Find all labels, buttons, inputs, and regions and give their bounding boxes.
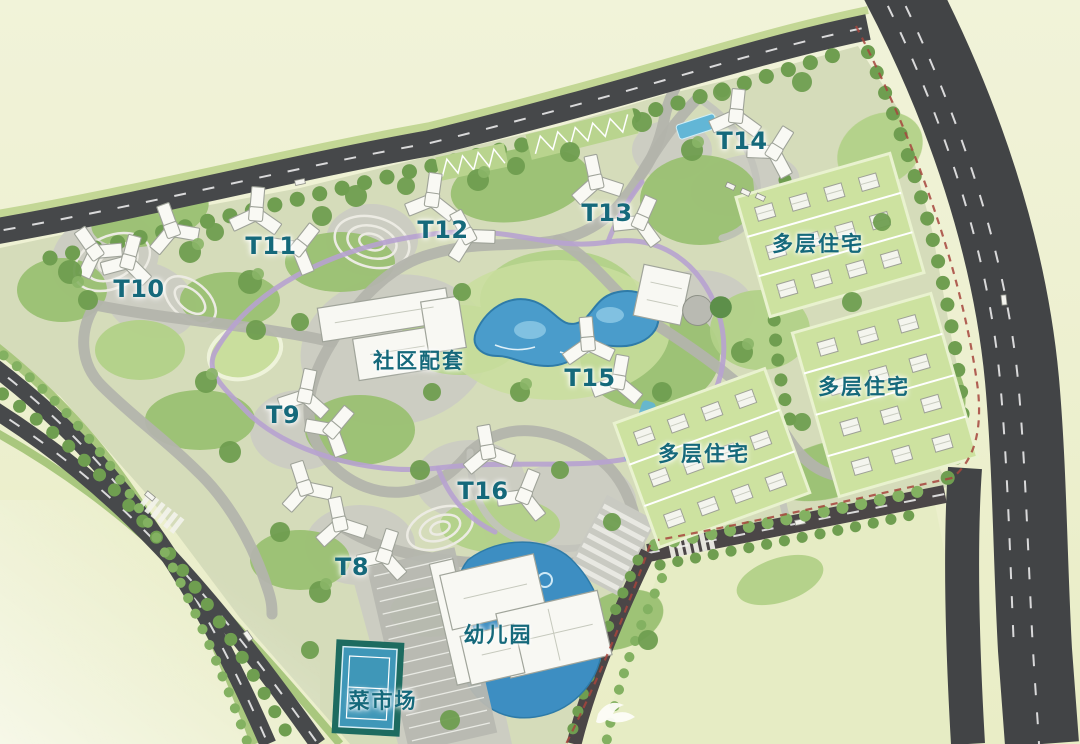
label-t9: T9: [266, 401, 300, 429]
site-plan-drawing: [0, 0, 1080, 744]
label-market: 菜市场: [349, 685, 418, 715]
label-t12: T12: [417, 216, 468, 244]
label-multi-storey-south: 多层住宅: [658, 438, 750, 468]
label-t15: T15: [564, 364, 615, 392]
label-multi-storey-north: 多层住宅: [772, 228, 864, 258]
label-t11: T11: [245, 232, 296, 260]
label-t13: T13: [581, 199, 632, 227]
ramp-road: [962, 468, 968, 744]
label-multi-storey-east: 多层住宅: [818, 371, 910, 401]
label-t10: T10: [113, 275, 164, 303]
label-t14: T14: [716, 127, 767, 155]
label-community-facilities: 社区配套: [373, 345, 465, 375]
label-kindergarten: 幼儿园: [464, 619, 533, 649]
label-t16: T16: [457, 477, 508, 505]
site-plan-map: T8 T9 T10 T11 T12 T13 T14 T15 T16 社区配套 幼…: [0, 0, 1080, 744]
label-t8: T8: [335, 553, 369, 581]
